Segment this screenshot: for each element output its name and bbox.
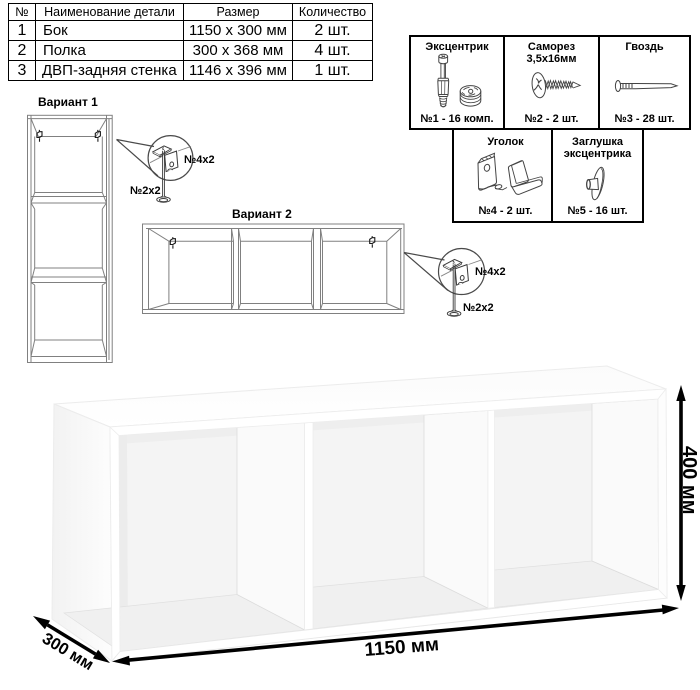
- svg-text:400 мм: 400 мм: [678, 446, 700, 515]
- svg-text:1150 мм: 1150 мм: [364, 634, 440, 661]
